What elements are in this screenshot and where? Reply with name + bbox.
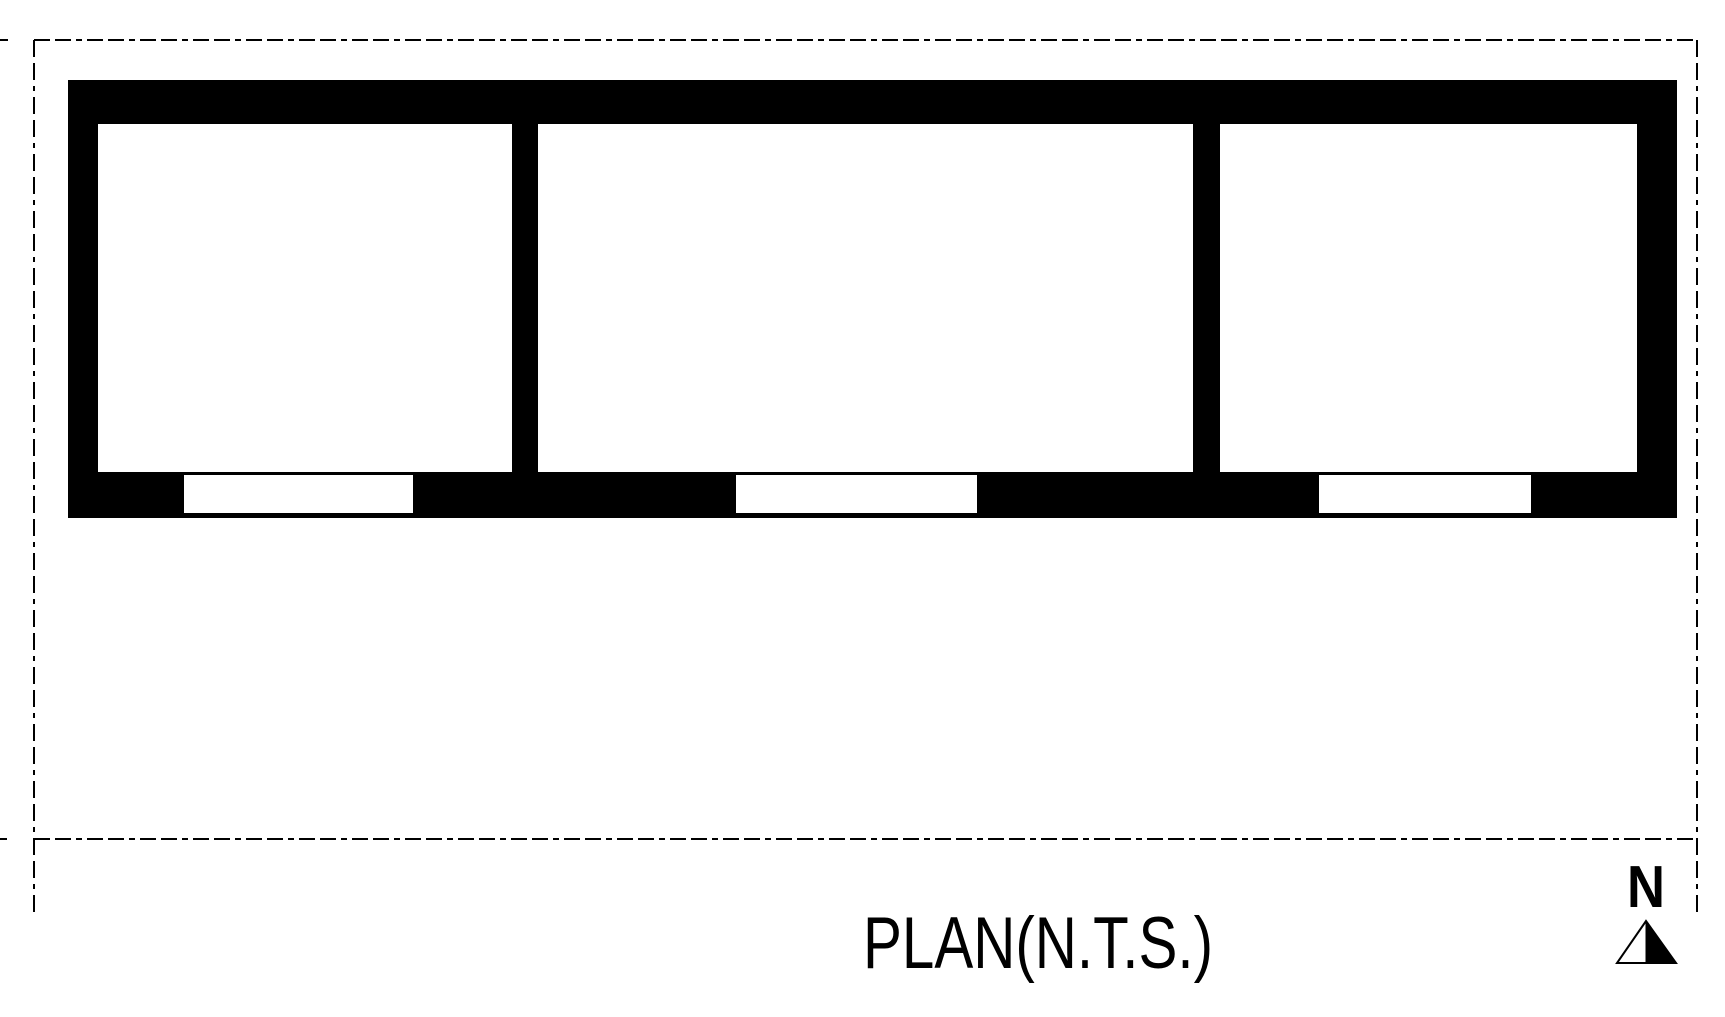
plan-title: PLAN(N.T.S.) [863,903,1213,984]
plan-drawing: N PLAN(N.T.S.) [0,0,1725,1017]
room-2 [538,124,1193,472]
room-1 [98,124,512,472]
door-opening-1 [184,475,413,513]
north-label: N [1627,854,1665,920]
drawing-sheet: N PLAN(N.T.S.) [0,0,1725,1017]
building [68,80,1677,518]
door-opening-3 [1319,475,1531,513]
door-opening-2 [736,475,977,513]
room-3 [1220,124,1637,472]
